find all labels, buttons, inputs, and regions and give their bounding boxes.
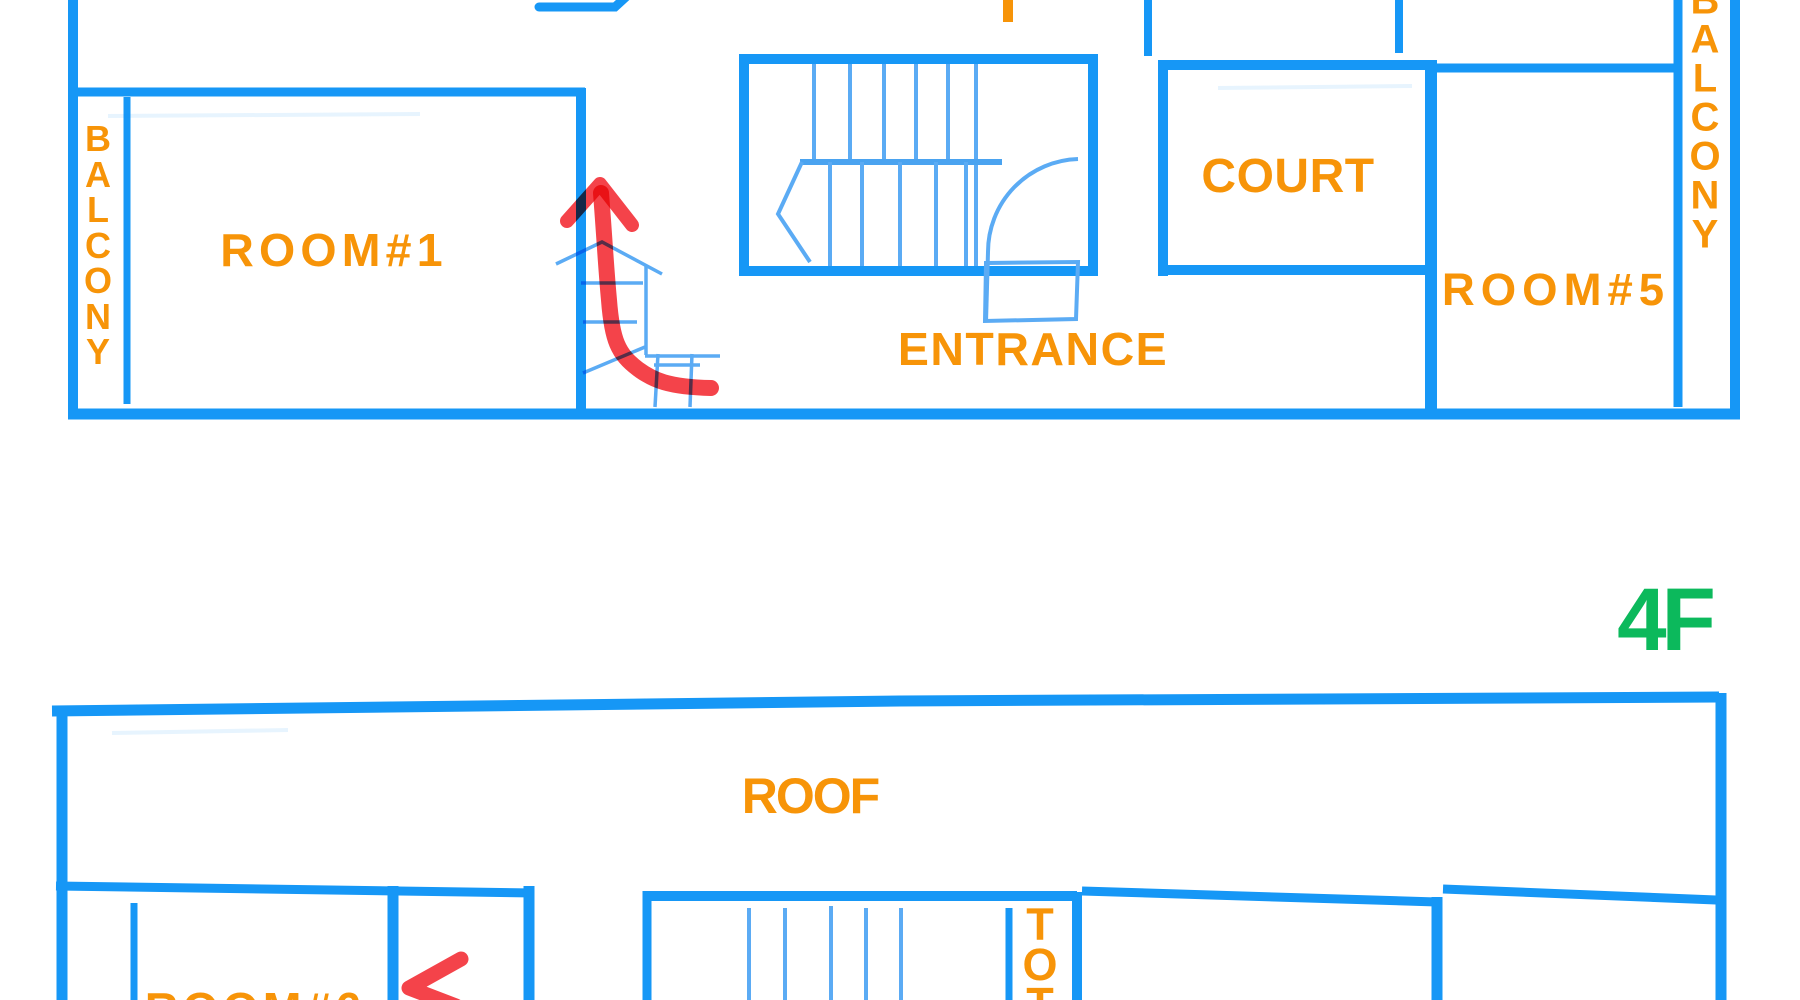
svg-text:COURT: COURT [1201,150,1374,203]
svg-text:A: A [1691,18,1720,62]
svg-text:C: C [1691,96,1720,140]
svg-text:ROOM#5: ROOM#5 [1442,264,1670,315]
svg-text:B: B [85,118,111,159]
svg-text:ROOF: ROOF [742,768,879,824]
svg-text:L: L [87,189,109,230]
svg-text:N: N [1691,174,1720,218]
svg-text:ROOM#6: ROOM#6 [145,983,365,1000]
svg-text:ROOM#1: ROOM#1 [220,224,448,276]
svg-text:L: L [1693,57,1717,101]
svg-text:T: T [1026,979,1054,1000]
svg-text:Y: Y [86,331,110,372]
svg-text:O: O [1689,135,1720,179]
svg-text:Y: Y [1692,213,1719,257]
svg-text:ENTRANCE: ENTRANCE [898,323,1168,375]
svg-text:4F: 4F [1617,569,1713,669]
svg-text:O: O [84,260,112,301]
